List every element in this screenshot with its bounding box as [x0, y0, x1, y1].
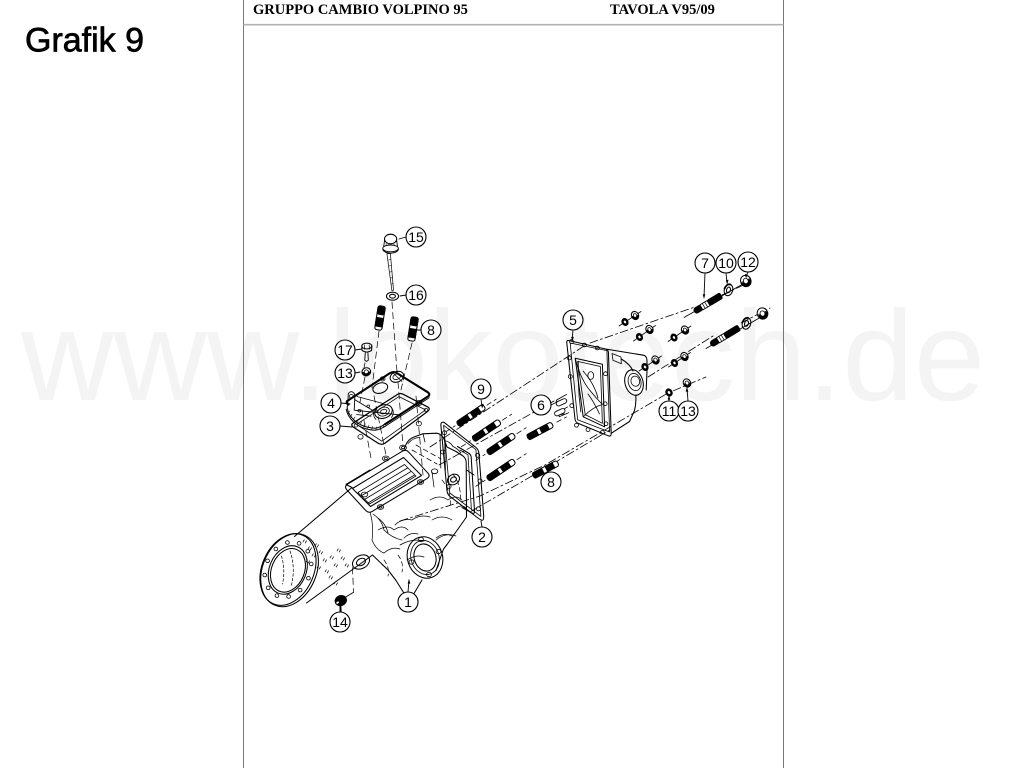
svg-text:16: 16	[408, 287, 424, 303]
svg-text:5: 5	[569, 312, 577, 328]
svg-text:17: 17	[337, 342, 353, 358]
svg-text:GRUPPO CAMBIO VOLPINO 95: GRUPPO CAMBIO VOLPINO 95	[253, 2, 468, 18]
svg-text:7: 7	[701, 255, 709, 271]
svg-text:1: 1	[404, 594, 412, 610]
svg-text:10: 10	[718, 255, 734, 271]
svg-text:11: 11	[662, 403, 677, 419]
svg-text:15: 15	[408, 229, 424, 245]
svg-text:6: 6	[537, 397, 545, 413]
svg-text:4: 4	[327, 395, 335, 411]
svg-text:2: 2	[478, 529, 486, 545]
svg-text:13: 13	[337, 365, 353, 381]
svg-text:TAVOLA V95/09: TAVOLA V95/09	[610, 2, 715, 18]
svg-text:9: 9	[477, 381, 485, 397]
svg-text:www.lokotech.de: www.lokotech.de	[20, 285, 985, 428]
svg-text:Grafik 9: Grafik 9	[25, 22, 144, 60]
svg-text:8: 8	[427, 322, 435, 338]
svg-text:12: 12	[740, 254, 756, 270]
svg-text:14: 14	[332, 614, 348, 630]
svg-text:13: 13	[680, 403, 696, 419]
svg-text:8: 8	[547, 474, 555, 490]
svg-text:3: 3	[326, 418, 334, 434]
